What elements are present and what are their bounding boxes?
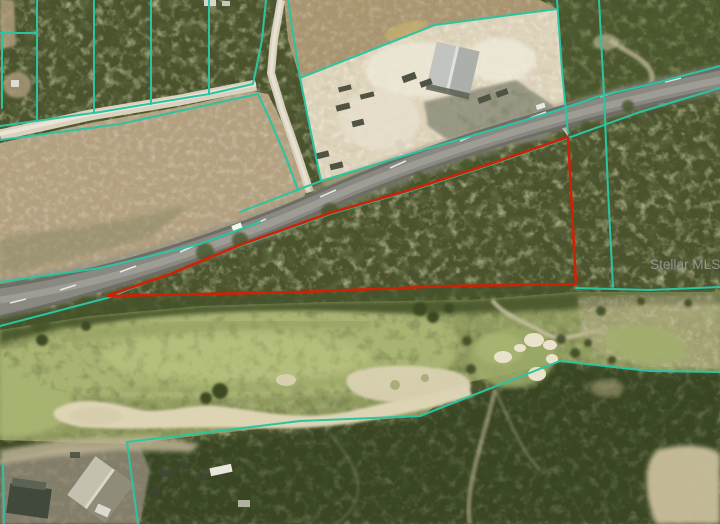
svg-text:Stellar MLS: Stellar MLS	[650, 257, 720, 272]
